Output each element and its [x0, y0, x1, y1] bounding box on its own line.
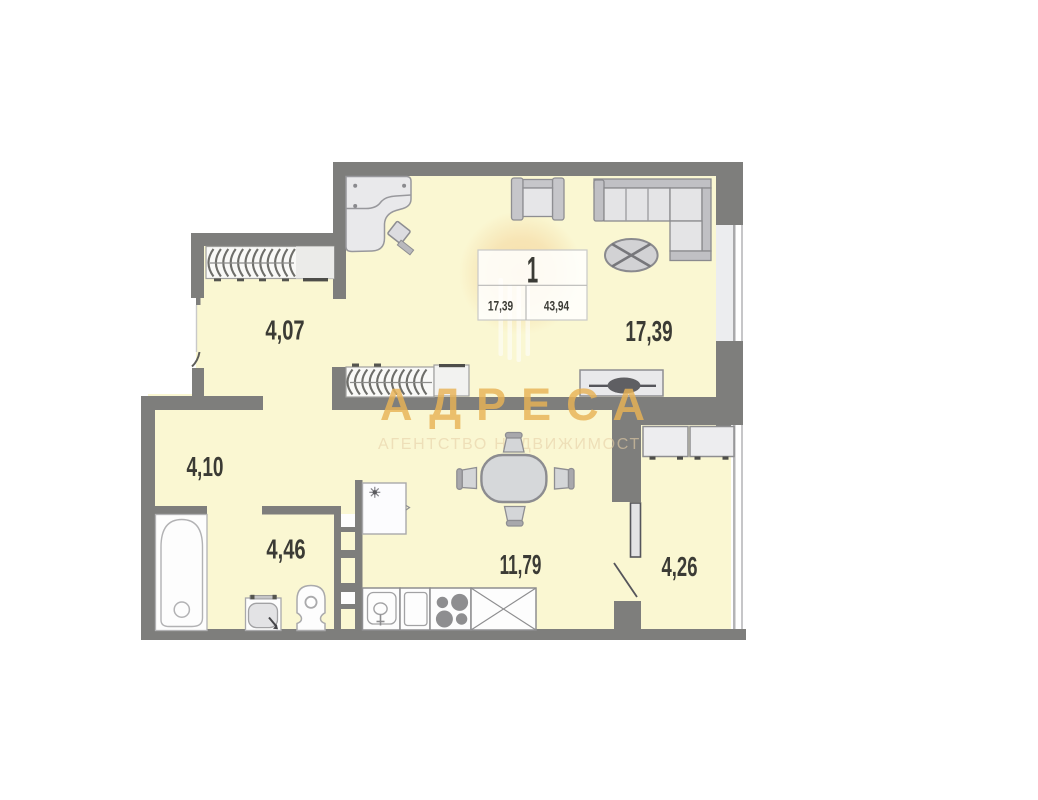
- svg-text:1: 1: [527, 250, 538, 291]
- svg-text:17,39: 17,39: [488, 298, 513, 314]
- svg-text:4,26: 4,26: [662, 552, 698, 583]
- svg-text:4,10: 4,10: [186, 451, 223, 483]
- svg-text:17,39: 17,39: [625, 316, 672, 348]
- svg-text:11,79: 11,79: [500, 549, 542, 580]
- svg-text:43,94: 43,94: [544, 298, 569, 314]
- svg-text:4,46: 4,46: [266, 534, 305, 565]
- svg-text:4,07: 4,07: [265, 315, 304, 346]
